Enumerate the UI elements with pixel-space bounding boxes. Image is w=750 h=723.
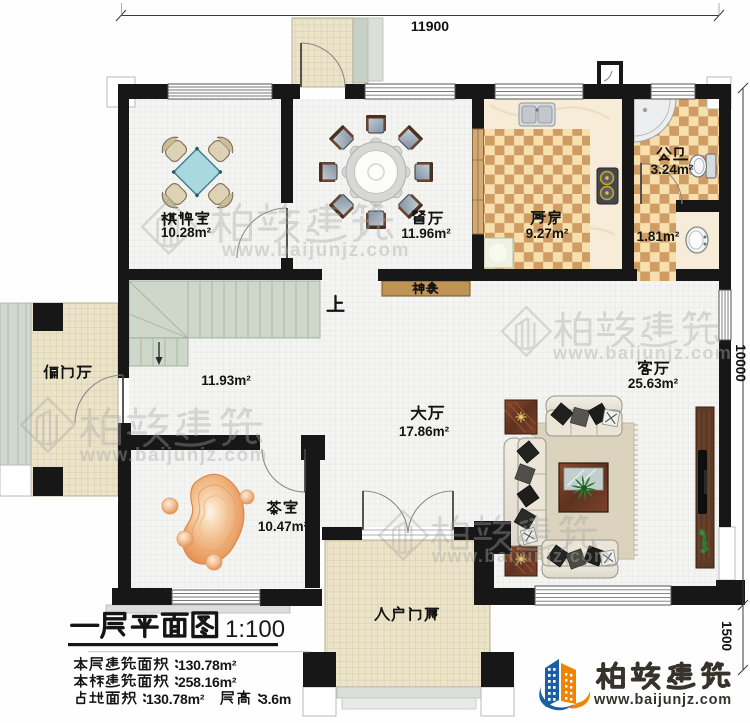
svg-text:3.24m²: 3.24m² (651, 162, 694, 177)
svg-text:1.81m²: 1.81m² (637, 229, 680, 244)
svg-text:www.baijunjz.com: www.baijunjz.com (552, 343, 732, 363)
svg-text:17.86m²: 17.86m² (399, 424, 450, 439)
svg-text:9.27m²: 9.27m² (526, 226, 569, 241)
svg-text:www.baijunjz.com: www.baijunjz.com (431, 546, 611, 566)
svg-text:258.16m²: 258.16m² (178, 674, 237, 690)
svg-text:1:100: 1:100 (225, 616, 285, 643)
svg-text:11900: 11900 (411, 18, 449, 34)
svg-text:25.63m²: 25.63m² (628, 376, 679, 391)
svg-text:11.93m²: 11.93m² (201, 373, 251, 388)
svg-text:1500: 1500 (719, 621, 734, 651)
svg-text:10000: 10000 (733, 344, 748, 382)
svg-text:130.78m²: 130.78m² (146, 691, 205, 707)
svg-text:10.47m²: 10.47m² (258, 519, 309, 534)
svg-text:www.baijunjz.com: www.baijunjz.com (79, 445, 268, 466)
svg-text:www.baijunjz.com: www.baijunjz.com (593, 692, 732, 708)
svg-text:130.78m²: 130.78m² (178, 657, 237, 673)
svg-text:10.28m²: 10.28m² (161, 225, 212, 240)
svg-text:11.96m²: 11.96m² (401, 226, 451, 241)
svg-text:www.baijunjz.com: www.baijunjz.com (221, 240, 410, 261)
svg-text:3.6m: 3.6m (260, 691, 291, 707)
